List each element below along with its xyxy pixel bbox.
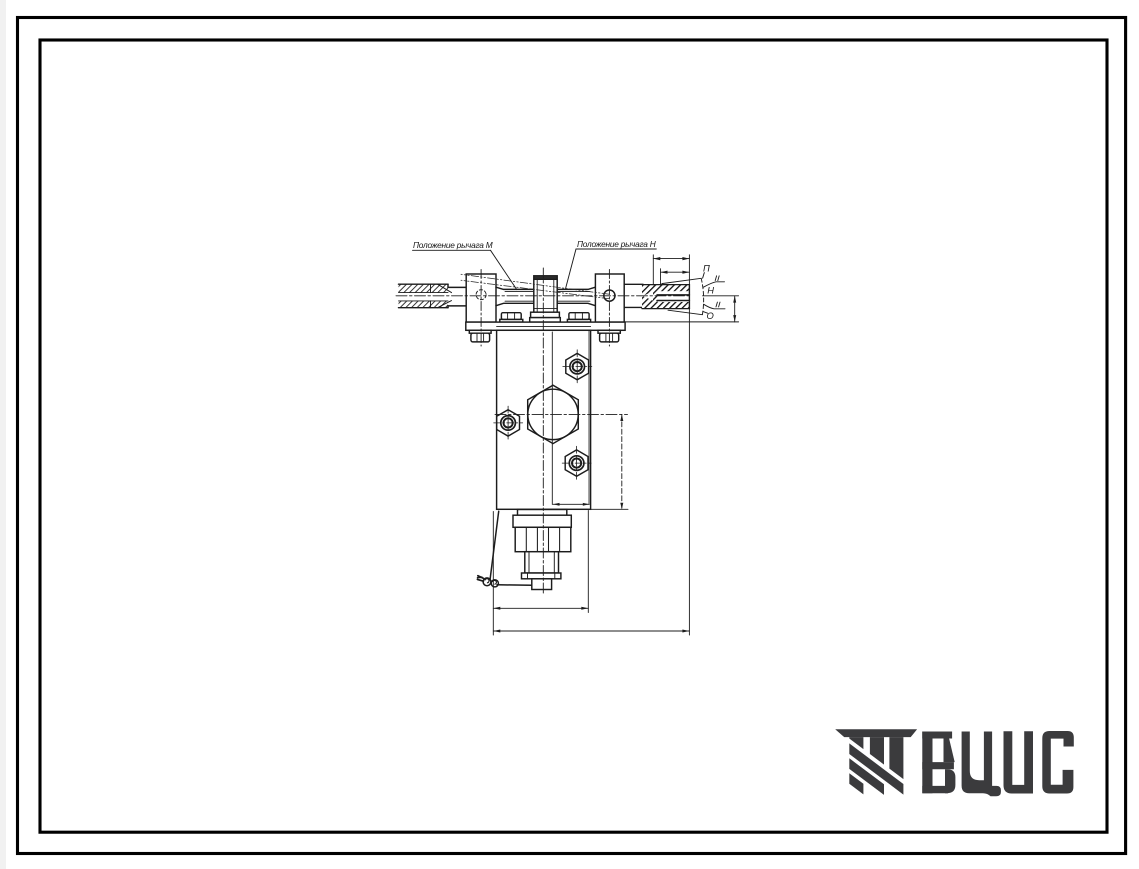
svg-text:Положение рычага Н: Положение рычага Н [577, 239, 656, 249]
svg-text:О: О [707, 310, 715, 321]
svg-text:Н: Н [707, 284, 714, 295]
svg-text:Положение рычага М: Положение рычага М [413, 240, 493, 250]
svg-text:П: П [703, 263, 710, 274]
